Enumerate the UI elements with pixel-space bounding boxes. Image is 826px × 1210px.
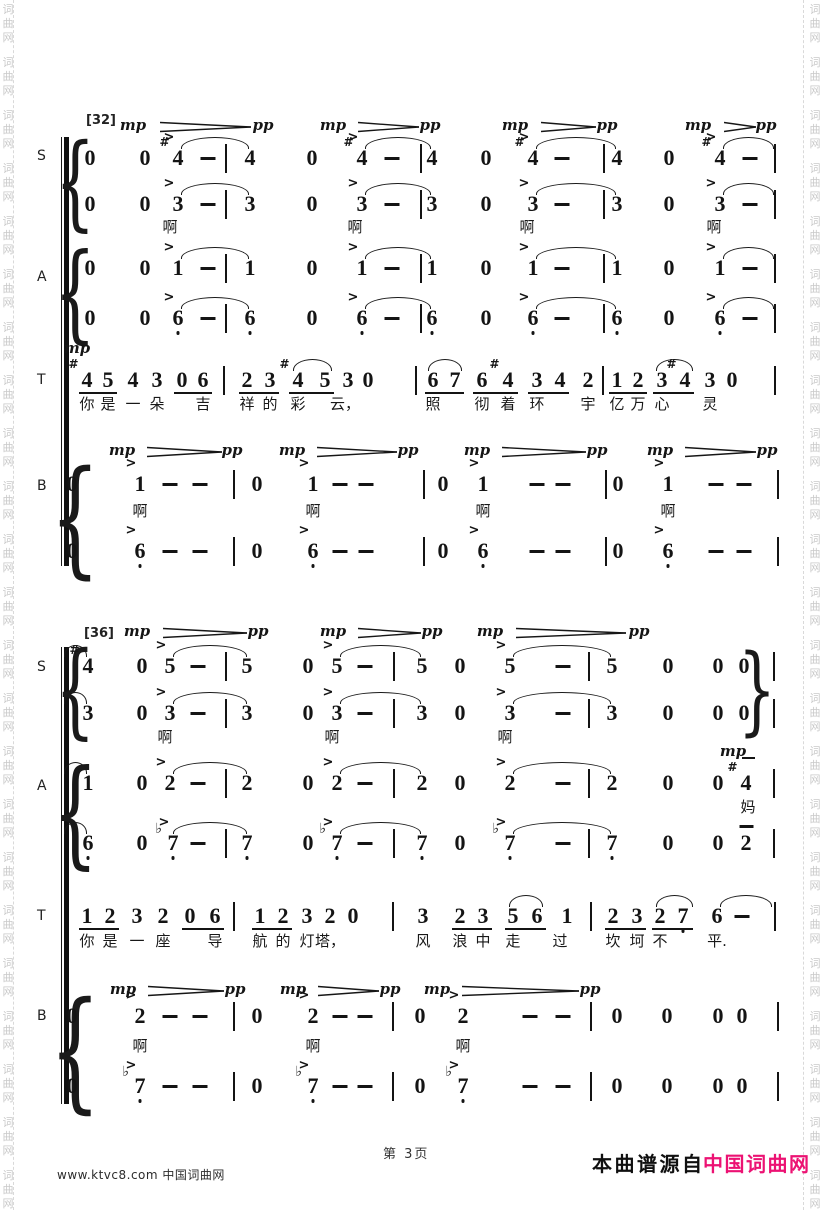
lyric-syllable: 啊 <box>324 729 339 745</box>
duration-dash <box>523 1085 538 1088</box>
sharp-icon: # <box>515 137 525 148</box>
note-number: 7 <box>242 832 253 854</box>
watermark-char: 曲 <box>1 865 15 878</box>
barline <box>773 652 775 681</box>
barline <box>393 829 395 858</box>
watermark-char: 词 <box>808 851 822 864</box>
flat-icon: ♭ <box>493 823 500 835</box>
watermark-char: 词 <box>1 904 15 917</box>
note-number: 3 <box>532 369 543 391</box>
watermark-char: 词 <box>1 1116 15 1129</box>
duration-dash <box>333 483 348 486</box>
duration-dash <box>743 157 758 160</box>
duration-dash <box>556 1085 571 1088</box>
barline <box>233 470 235 499</box>
rest-number: 0 <box>303 655 314 677</box>
note-number: 4 <box>245 147 256 169</box>
lyric-syllable: 中 <box>475 933 490 949</box>
watermark-char: 网 <box>1 455 15 468</box>
duration-dash <box>385 267 400 270</box>
note-number: 3 <box>302 905 313 927</box>
rest-number: 0 <box>612 1075 623 1097</box>
duration-dash <box>743 203 758 206</box>
source-brand-link[interactable]: 中国词曲网 <box>703 1153 811 1175</box>
dynamic-mark-pp: pp <box>422 624 443 638</box>
sharp-icon: # <box>160 137 170 148</box>
part-label: T <box>37 372 46 388</box>
duration-dash <box>556 842 571 845</box>
note-number: 3 <box>705 369 716 391</box>
lyric-syllable: 的 <box>275 933 290 949</box>
rest-number: 0 <box>252 1005 263 1027</box>
watermark-char: 网 <box>808 243 822 256</box>
note-number: 5 <box>103 369 114 391</box>
low-octave-dot <box>615 331 619 335</box>
watermark-char: 曲 <box>808 70 822 83</box>
sharp-icon: # <box>70 645 80 656</box>
note-number: 1> <box>715 257 726 279</box>
rest-number: 0 <box>664 257 675 279</box>
rest-number: 0 <box>663 702 674 724</box>
accent-icon: > <box>348 242 359 254</box>
accent-icon: > <box>164 292 175 304</box>
lyric-syllable: 座 <box>155 933 170 949</box>
watermark-char: 词 <box>1 268 15 281</box>
lyric-syllable: 啊 <box>455 1038 470 1054</box>
watermark-char: 词 <box>1 692 15 705</box>
watermark-char: 曲 <box>1 971 15 984</box>
page-number: 第 3页 <box>383 1143 429 1162</box>
dynamic-mark-pp: pp <box>420 118 441 132</box>
watermark-char: 网 <box>808 826 822 839</box>
lyric-syllable: 啊 <box>132 503 147 519</box>
watermark-char: 曲 <box>1 123 15 136</box>
watermark-char: 词 <box>1 480 15 493</box>
flat-icon: ♭ <box>320 823 327 835</box>
watermark-char: 曲 <box>808 229 822 242</box>
watermark-char: 网 <box>808 349 822 362</box>
barline <box>415 366 417 395</box>
watermark-char: 网 <box>1 137 15 150</box>
barline <box>777 1002 779 1031</box>
accent-icon: > <box>348 178 359 190</box>
watermark-char: 曲 <box>1 229 15 242</box>
watermark-char: 曲 <box>1 70 15 83</box>
rest-number: 0 <box>85 147 96 169</box>
tie-slur-arc <box>340 822 421 834</box>
barline <box>225 190 227 219</box>
watermark-char: 词 <box>1 745 15 758</box>
note-number: 3 <box>478 905 489 927</box>
note-number: 3> <box>357 193 368 215</box>
barline <box>774 254 776 283</box>
note-number: 3> <box>715 193 726 215</box>
dynamic-mark-mp: mp <box>320 118 346 132</box>
watermark-char: 词 <box>808 1010 822 1023</box>
duration-dash <box>530 483 545 486</box>
note-number: 4# <box>82 369 93 391</box>
watermark-char: 网 <box>808 402 822 415</box>
accent-icon: > <box>496 757 507 769</box>
note-number: 3> <box>505 702 516 724</box>
tie-slur-arc <box>340 762 421 774</box>
barline <box>393 699 395 728</box>
dynamic-mark-mp: mp <box>124 624 150 638</box>
watermark-char: 词 <box>1 957 15 970</box>
duration-dash <box>737 483 752 486</box>
rest-number: 0 <box>137 772 148 794</box>
barline <box>420 144 422 173</box>
note-number: 1> <box>478 473 489 495</box>
dynamic-mark-pp: pp <box>248 624 269 638</box>
lyric-syllable: 环 <box>529 396 544 412</box>
lyric-syllable: 灯 <box>299 933 314 949</box>
barline <box>423 537 425 566</box>
dynamic-mark-mp: mp <box>477 624 503 638</box>
duration-dash <box>523 1015 538 1018</box>
duration-dash <box>333 1085 348 1088</box>
sharp-icon: # <box>69 359 79 370</box>
dynamic-mark-pp: pp <box>253 118 274 132</box>
lyric-syllable: 啊 <box>475 503 490 519</box>
duration-dash <box>555 317 570 320</box>
low-octave-dot <box>311 1099 315 1103</box>
note-number: 6> <box>357 307 368 329</box>
note-number: 2 <box>105 905 116 927</box>
lyric-syllable: 啊 <box>305 1038 320 1054</box>
watermark-char: 曲 <box>1 759 15 772</box>
duration-dash <box>556 665 571 668</box>
rest-number: 0 <box>612 1005 623 1027</box>
watermark-char: 网 <box>1 561 15 574</box>
rest-number: 0 <box>737 1075 748 1097</box>
note-number: 5> <box>332 655 343 677</box>
rest-number: 0 <box>67 540 78 562</box>
decrescendo-hairpin-icon <box>358 120 419 132</box>
duration-dash <box>358 712 373 715</box>
rest-number: 0 <box>307 147 318 169</box>
note-number: 3 <box>265 369 276 391</box>
watermark-char: 网 <box>808 455 822 468</box>
watermark-char: 词 <box>808 586 822 599</box>
duration-dash <box>556 782 571 785</box>
watermark-char: 词 <box>808 904 822 917</box>
tie-slur-arc <box>173 692 247 704</box>
flat-icon: ♭ <box>296 1066 303 1078</box>
duration-dash <box>191 665 206 668</box>
tie-slur-arc <box>173 762 247 774</box>
watermark-char: 词 <box>1 851 15 864</box>
lyric-syllable: 是 <box>102 933 117 949</box>
duration-dash <box>555 203 570 206</box>
watermark-char: 词 <box>1 1063 15 1076</box>
tie-slur-arc <box>173 645 247 657</box>
low-octave-dot <box>681 929 685 933</box>
duration-dash <box>737 550 752 553</box>
duration-dash <box>201 267 216 270</box>
barline <box>233 537 235 566</box>
rest-number: 0 <box>415 1075 426 1097</box>
note-number: 3 <box>245 193 256 215</box>
duration-dash <box>743 317 758 320</box>
low-octave-dot <box>531 331 535 335</box>
accent-icon: > <box>449 990 460 1002</box>
flat-icon: ♭ <box>446 1066 453 1078</box>
barline <box>774 304 776 333</box>
dynamic-mark-mp: mp <box>320 624 346 638</box>
watermark-char: 词 <box>808 162 822 175</box>
duration-dash <box>163 1015 178 1018</box>
duration-dash <box>556 483 571 486</box>
duration-dash <box>556 712 571 715</box>
decrescendo-hairpin-icon <box>685 445 756 457</box>
note-number: 1> <box>135 473 146 495</box>
tie-slur-arc <box>513 762 611 774</box>
watermark-char: 网 <box>808 614 822 627</box>
watermark-char: 网 <box>1 243 15 256</box>
watermark-char: 曲 <box>808 441 822 454</box>
barline <box>773 769 775 798</box>
barline <box>420 304 422 333</box>
dynamic-mark-mp: mp <box>647 443 673 457</box>
note-number: 5 <box>320 369 331 391</box>
rest-number: 0 <box>348 905 359 927</box>
note-number: 4# <box>680 369 691 391</box>
barline <box>605 537 607 566</box>
note-number: 6> <box>478 540 489 562</box>
barline <box>392 1072 394 1101</box>
barline <box>588 769 590 798</box>
rest-number: 0 <box>85 257 96 279</box>
note-number: 3 <box>242 702 253 724</box>
rest-number: 0 <box>727 369 738 391</box>
dynamic-mark-pp: pp <box>756 118 777 132</box>
rest-number: 0 <box>713 832 724 854</box>
decrescendo-hairpin-icon <box>541 120 596 132</box>
duration-dash <box>201 317 216 320</box>
note-number: 1 <box>612 369 623 391</box>
note-number: 1 <box>83 772 94 794</box>
accent-icon: > <box>706 178 717 190</box>
lyric-syllable: 啊 <box>132 1038 147 1054</box>
watermark-char: 词 <box>808 268 822 281</box>
note-number: 2 <box>278 905 289 927</box>
watermark-char: 网 <box>808 296 822 309</box>
watermark-char: 网 <box>808 773 822 786</box>
lyric-syllable: 万 <box>630 396 645 412</box>
rest-number: 0 <box>303 772 314 794</box>
note-number: 3 <box>132 905 143 927</box>
note-number: 6 <box>83 832 94 854</box>
duration-dash <box>333 1015 348 1018</box>
footer-site-url[interactable]: www.ktvc8.com 中国词曲网 <box>57 1166 225 1183</box>
lyric-syllable: 云， <box>330 396 360 412</box>
barline <box>588 829 590 858</box>
watermark-char: 词 <box>808 56 822 69</box>
barline <box>225 652 227 681</box>
note-number: 1> <box>173 257 184 279</box>
rest-number: 0 <box>663 772 674 794</box>
note-number: 5 <box>242 655 253 677</box>
rest-number: 0 <box>664 193 675 215</box>
rest-number: 0 <box>177 369 188 391</box>
accent-icon: > <box>519 292 530 304</box>
lyric-syllable: 坎 <box>605 933 620 949</box>
rest-number: 0 <box>664 307 675 329</box>
watermark-char: 网 <box>808 1197 822 1210</box>
note-number: 2> <box>165 772 176 794</box>
low-octave-dot <box>176 331 180 335</box>
lyric-syllable: 平. <box>707 933 727 949</box>
accent-icon: > <box>164 178 175 190</box>
note-number: 4># <box>715 147 726 169</box>
lyric-syllable: 是 <box>100 396 115 412</box>
dynamic-mark-mp: mp <box>424 982 450 996</box>
note-number: 3 <box>427 193 438 215</box>
note-number: 2 <box>608 905 619 927</box>
note-number: 3> <box>173 193 184 215</box>
watermark-dashed-line <box>803 0 804 1210</box>
dynamic-mark-mp: mp <box>109 443 135 457</box>
duration-dash <box>743 267 758 270</box>
note-number: 6> <box>663 540 674 562</box>
watermark-char: 曲 <box>808 1130 822 1143</box>
note-number: 1 <box>82 905 93 927</box>
rest-number: 0 <box>137 832 148 854</box>
watermark-char: 曲 <box>1 600 15 613</box>
note-number: 6 <box>427 307 438 329</box>
duration-dash <box>385 203 400 206</box>
accent-icon: > <box>654 525 665 537</box>
accent-icon: > <box>654 458 665 470</box>
note-number: 4 <box>128 369 139 391</box>
lyric-syllable: 啊 <box>519 219 534 235</box>
barline <box>603 304 605 333</box>
note-number: 1> <box>528 257 539 279</box>
lyric-syllable: 彩 <box>290 396 305 412</box>
watermark-char: 词 <box>1 1169 15 1182</box>
note-number: 3 <box>632 905 643 927</box>
note-number: 3 <box>612 193 623 215</box>
lyric-syllable: 灵 <box>702 396 717 412</box>
rest-number: 0 <box>303 832 314 854</box>
barline <box>588 652 590 681</box>
barline <box>774 902 776 931</box>
note-number: 2> <box>505 772 516 794</box>
rest-number: 0 <box>455 702 466 724</box>
watermark-char: 词 <box>808 109 822 122</box>
barline <box>233 1072 235 1101</box>
accent-icon: > <box>299 458 310 470</box>
barline <box>225 254 227 283</box>
note-number: 1> <box>357 257 368 279</box>
rest-number: 0 <box>303 702 314 724</box>
note-number: 2 <box>633 369 644 391</box>
duration-dash <box>359 550 374 553</box>
low-octave-dot <box>481 564 485 568</box>
decrescendo-hairpin-icon <box>163 626 247 638</box>
note-number: 6> <box>528 307 539 329</box>
note-number: 2 <box>417 772 428 794</box>
low-octave-dot <box>360 331 364 335</box>
watermark-char: 曲 <box>808 600 822 613</box>
barline <box>590 1002 592 1031</box>
watermark-char: 网 <box>1 508 15 521</box>
rest-number: 0 <box>662 1075 673 1097</box>
note-number: 3 <box>152 369 163 391</box>
lyric-syllable: 啊 <box>157 729 172 745</box>
note-number: 7>♭ <box>308 1075 319 1097</box>
note-number: 4># <box>357 147 368 169</box>
low-octave-dot <box>311 564 315 568</box>
note-number: 7>♭ <box>505 832 516 854</box>
watermark-char: 词 <box>808 427 822 440</box>
dynamic-mark-pp: pp <box>597 118 618 132</box>
rest-number: 0 <box>140 307 151 329</box>
lyric-syllable: 风 <box>415 933 430 949</box>
tie-slur-arc <box>723 137 774 149</box>
duration-dash <box>191 712 206 715</box>
note-number: 6> <box>135 540 146 562</box>
dynamic-mark: mp <box>64 341 90 355</box>
note-number: 7 <box>678 905 689 927</box>
note-number: 4# <box>741 772 752 794</box>
watermark-char: 曲 <box>808 759 822 772</box>
lyric-syllable: 宇 <box>580 396 595 412</box>
dynamic-mark-pp: pp <box>398 443 419 457</box>
rest-number: 0 <box>713 772 724 794</box>
barline <box>774 190 776 219</box>
note-number: 3> <box>528 193 539 215</box>
duration-dash <box>333 550 348 553</box>
watermark-char: 网 <box>808 720 822 733</box>
watermark-char: 网 <box>1 932 15 945</box>
barline <box>590 902 592 931</box>
rest-number: 0 <box>307 193 318 215</box>
note-number: 3 <box>657 369 668 391</box>
tie-slur-arc <box>181 183 249 195</box>
rest-number: 0 <box>664 147 675 169</box>
watermark-char: 网 <box>808 190 822 203</box>
part-label: B <box>37 478 47 494</box>
watermark-char: 曲 <box>1 1183 15 1196</box>
watermark-char: 曲 <box>808 865 822 878</box>
lyric-syllable: 坷 <box>629 933 644 949</box>
barline <box>777 1072 779 1101</box>
rest-number: 0 <box>455 832 466 854</box>
duration-dash <box>555 267 570 270</box>
lyric-syllable: 你 <box>79 396 94 412</box>
sharp-icon: # <box>728 762 738 773</box>
tie-slur-arc <box>340 692 421 704</box>
lyric-syllable: 航 <box>252 933 267 949</box>
watermark-char: 曲 <box>808 123 822 136</box>
note-number: 4# <box>83 655 94 677</box>
watermark-char: 词 <box>1 3 15 16</box>
accent-icon: > <box>299 990 310 1002</box>
note-number: 4# <box>293 369 304 391</box>
note-number: 2> <box>332 772 343 794</box>
sharp-icon: # <box>667 359 677 370</box>
note-number: 1 <box>562 905 573 927</box>
tie-slur-arc <box>340 645 421 657</box>
tie-slur-arc <box>181 247 249 259</box>
lyric-syllable: 照 <box>425 396 440 412</box>
low-octave-dot <box>245 856 249 860</box>
rest-number: 0 <box>613 540 624 562</box>
watermark-char: 网 <box>1 1144 15 1157</box>
note-number: 3 <box>418 905 429 927</box>
